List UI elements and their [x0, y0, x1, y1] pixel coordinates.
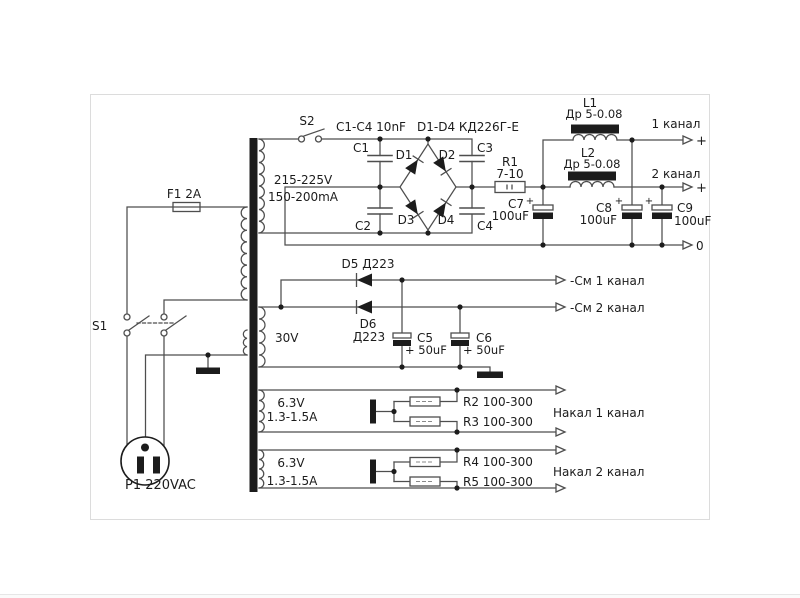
label-c6-value: + 50uF	[463, 343, 505, 357]
label-bias-winding: 30V	[275, 331, 299, 345]
label-f1: F1 2A	[167, 187, 202, 201]
resistor-r2	[410, 397, 440, 406]
label-c5-value: + 50uF	[405, 343, 447, 357]
label-bias-out2: -См 2 канал	[570, 301, 645, 315]
resistor-r4	[410, 458, 440, 467]
label-cap-group: C1-C4 10nF	[336, 120, 406, 134]
label-heater2-voltage: 6.3V	[277, 456, 305, 470]
label-d4: D4	[438, 213, 455, 227]
label-output-1: 1 канал	[652, 117, 701, 131]
label-s2: S2	[299, 114, 314, 128]
label-l2-value: Др 5-0.08	[563, 157, 620, 171]
resistor-r1	[495, 182, 525, 193]
label-hv-voltage: 215-225V	[274, 173, 333, 187]
label-hv-current: 150-200mA	[268, 190, 339, 204]
plus-mark-c9: +	[645, 196, 653, 207]
label-s1: S1	[92, 319, 107, 333]
label-heater2-out: Накал 2 канал	[553, 465, 644, 479]
label-output-0: 0	[696, 239, 704, 253]
label-r5: R5 100-300	[463, 475, 533, 489]
label-c9-value: 100uF	[674, 214, 712, 228]
resistor-r5	[410, 477, 440, 486]
label-c9: C9	[677, 201, 693, 215]
label-c2: C2	[355, 219, 371, 233]
label-bias-out1: -См 1 канал	[570, 274, 645, 288]
label-c1: C1	[353, 141, 369, 155]
label-heater1-voltage: 6.3V	[277, 396, 305, 410]
label-c3: C3	[477, 141, 493, 155]
junction-dot	[205, 352, 210, 357]
label-heater1-current: 1.3-1.5A	[267, 410, 318, 424]
label-r1-value: 7-10	[496, 167, 523, 181]
plus-mark-out2: +	[696, 181, 707, 196]
ground-bar-heater2	[370, 460, 376, 484]
label-d2: D2	[439, 148, 456, 162]
label-r4: R4 100-300	[463, 455, 533, 469]
resistor-r3	[410, 417, 440, 426]
label-r3: R3 100-300	[463, 415, 533, 429]
label-p1: P1 220VAC	[125, 478, 196, 493]
plus-mark-out1: +	[696, 134, 707, 149]
label-d6: D6	[360, 317, 377, 331]
label-d3: D3	[398, 213, 415, 227]
label-l1-value: Др 5-0.08	[565, 107, 622, 121]
label-d1: D1	[396, 148, 413, 162]
earth-symbol-primary	[196, 368, 220, 375]
label-diode-group: D1-D4 КД226Г-Е	[417, 120, 519, 134]
schematic-canvas: F1 2A S1 P1 220VAC	[0, 0, 800, 598]
label-c8-value: 100uF	[580, 213, 618, 227]
label-heater1-out: Накал 1 канал	[553, 406, 644, 420]
plus-mark-c7: +	[526, 196, 534, 207]
page-background: F1 2A S1 P1 220VAC	[0, 0, 800, 598]
earth-symbol-bias	[477, 372, 503, 379]
plus-mark-c8: +	[615, 196, 623, 207]
label-c7-value: 100uF	[492, 209, 530, 223]
ground-bar-heater1	[370, 400, 376, 424]
label-r2: R2 100-300	[463, 395, 533, 409]
label-d6-value: Д223	[353, 330, 385, 344]
label-output-2: 2 канал	[652, 167, 701, 181]
label-d5: D5 Д223	[342, 257, 395, 271]
label-heater2-current: 1.3-1.5A	[267, 474, 318, 488]
transformer-core	[250, 138, 258, 492]
